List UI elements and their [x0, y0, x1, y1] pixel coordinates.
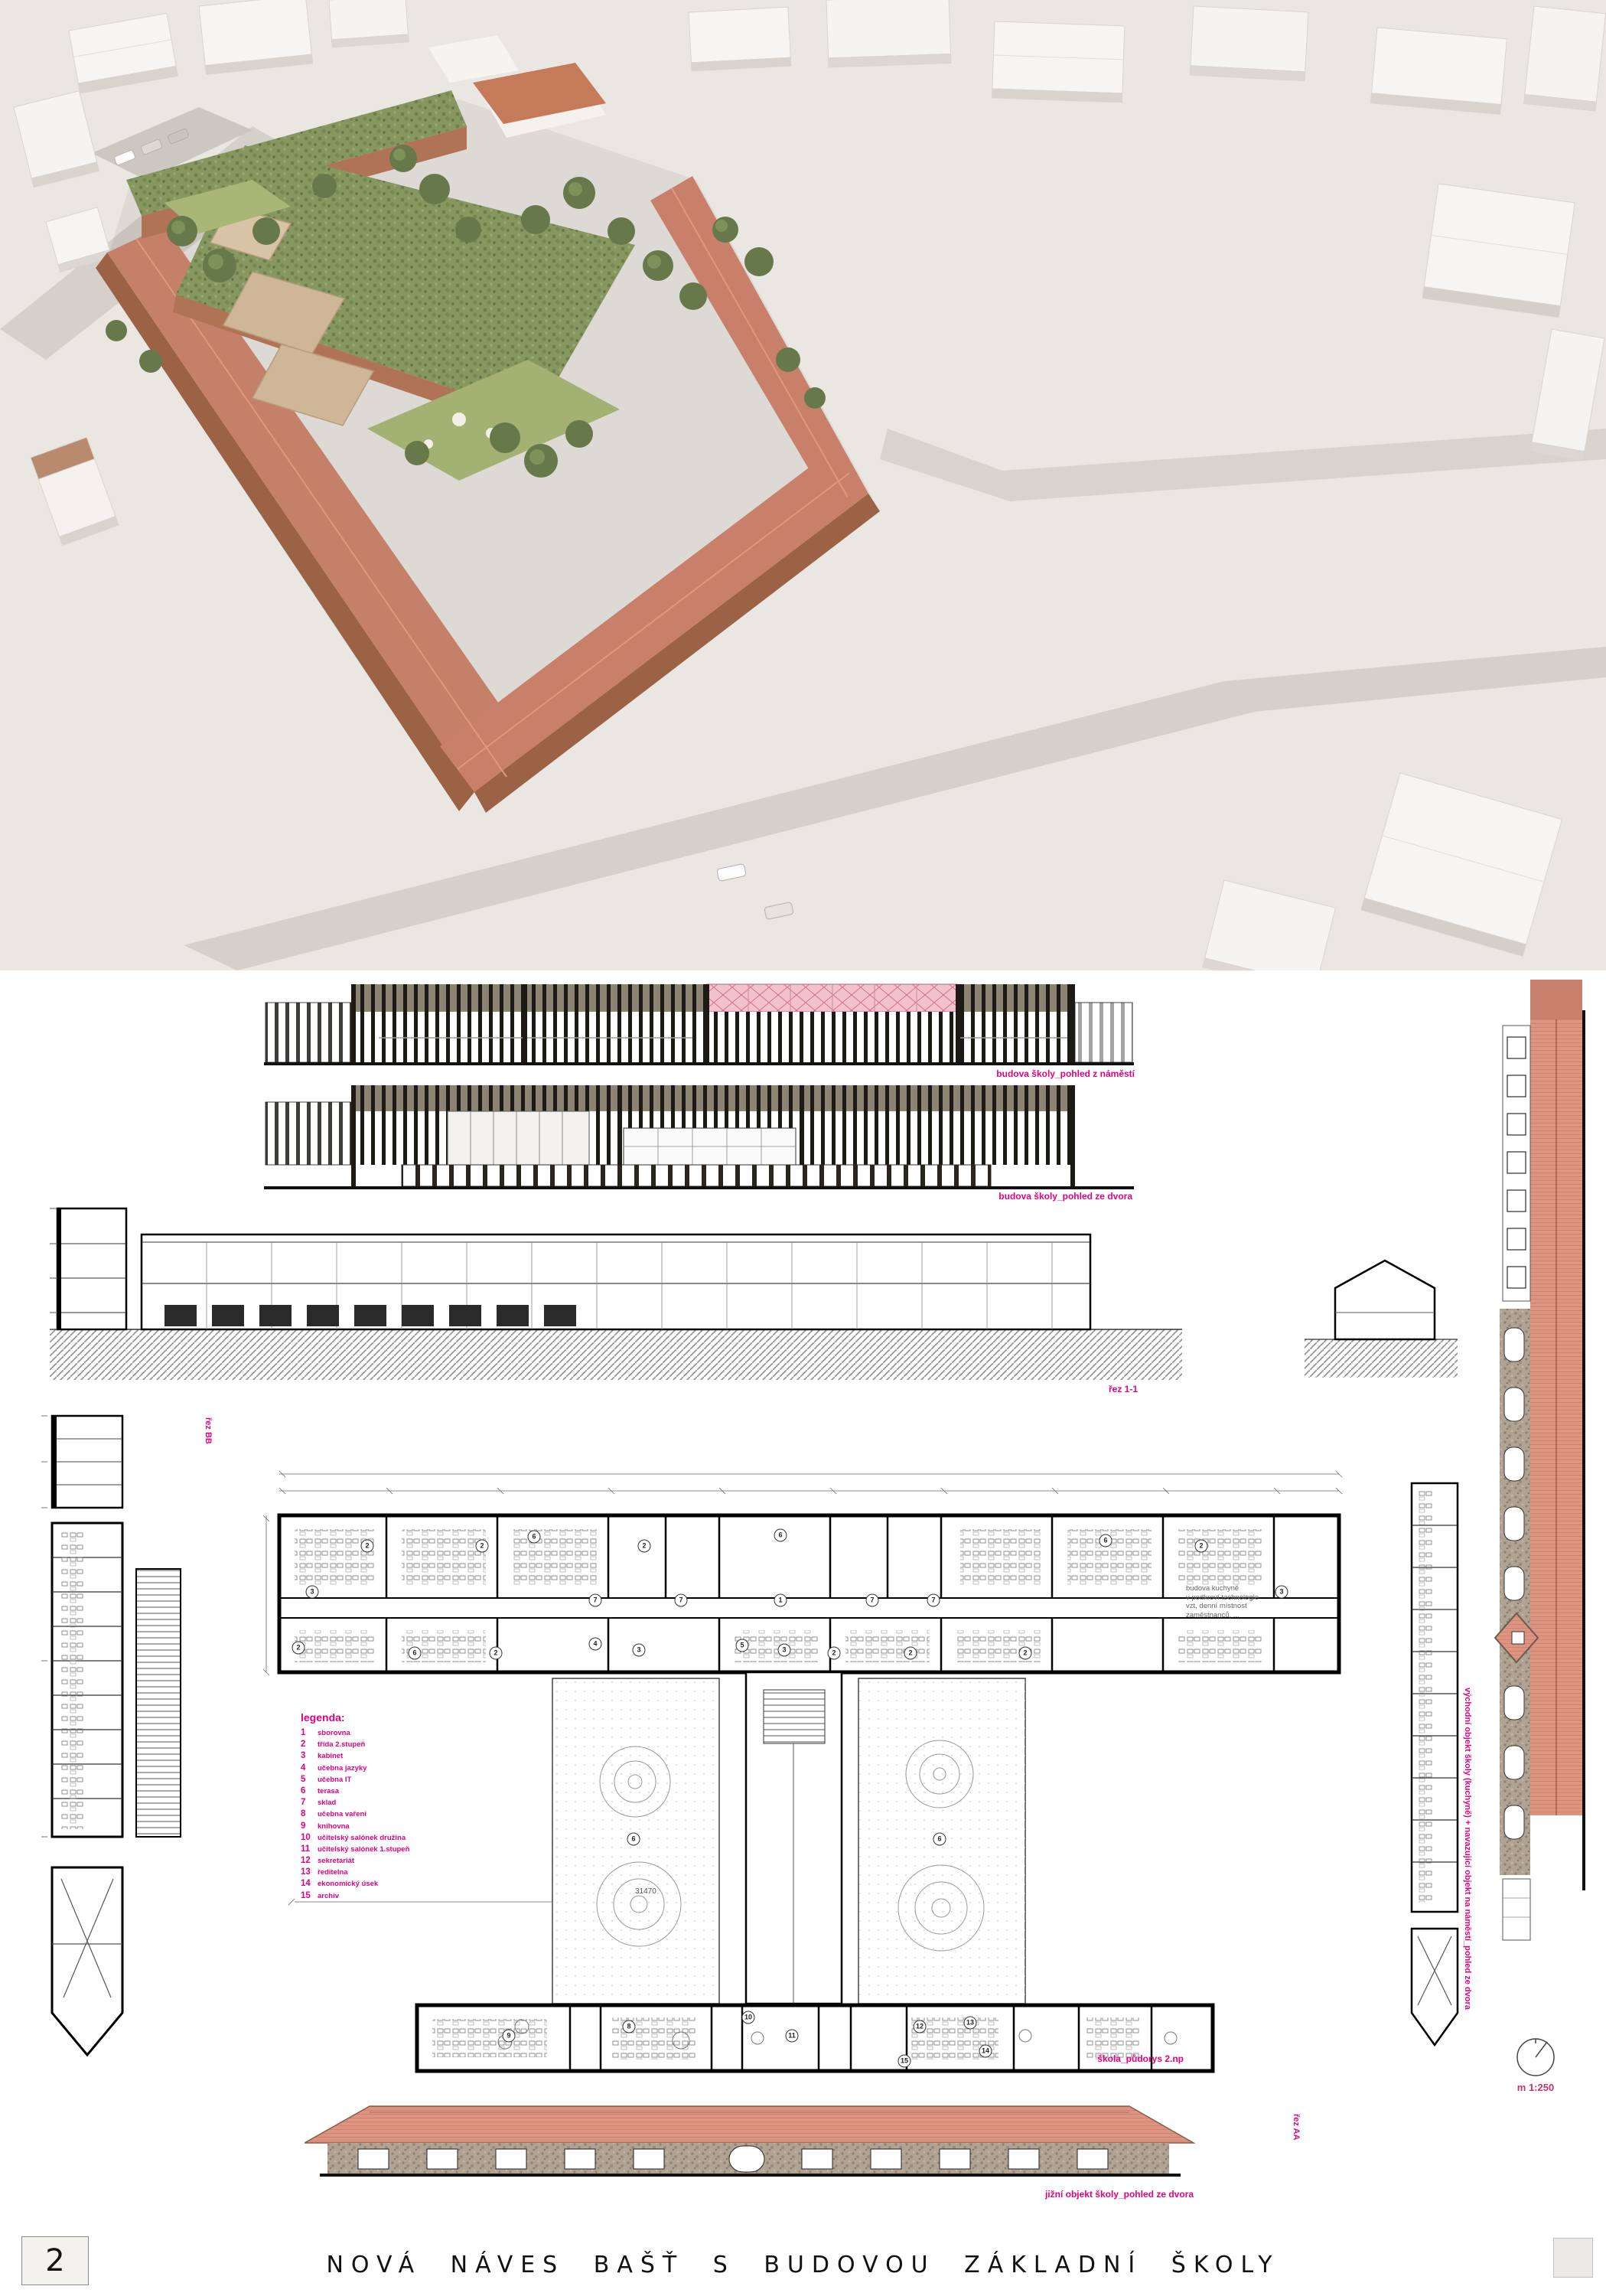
- room-number-marker: 2: [490, 1647, 503, 1660]
- room-number-marker: 2: [1195, 1540, 1208, 1553]
- legend-item: 10učitelský salónek družina: [301, 1833, 477, 1844]
- board-title: NOVÁ NÁVES BAŠŤ S BUDOVOU ZÁKLADNÍ ŠKOLY: [0, 2252, 1606, 2278]
- elevation-square-label: budova školy_pohled z náměstí: [880, 1068, 1135, 1079]
- legend-item: 13ředitelna: [301, 1867, 477, 1879]
- room-number-marker: 6: [774, 1529, 787, 1542]
- room-number-marker: 6: [409, 1647, 422, 1660]
- room-number-marker: 12: [914, 2020, 927, 2033]
- legend-item: 4učebna jazyky: [301, 1763, 477, 1775]
- legend-item: 15archiv: [301, 1891, 477, 1903]
- legend-items: 1sborovna2třída 2.stupeň3kabinet4učebna …: [301, 1728, 477, 1903]
- room-number-marker: 3: [306, 1586, 319, 1599]
- room-number-marker: 4: [589, 1638, 602, 1651]
- room-number-marker: 2: [904, 1647, 917, 1660]
- room-number-marker: 2: [1019, 1647, 1032, 1660]
- legend-item: 8učebna vaření: [301, 1809, 477, 1821]
- room-number-marker: 7: [866, 1594, 879, 1607]
- legend-item: 9knihovna: [301, 1821, 477, 1833]
- room-number-marker: 8: [623, 2020, 636, 2033]
- section-bb-drawing: [38, 1408, 203, 2070]
- south-elevation-label: jižní objekt školy_pohled ze dvora: [941, 2189, 1194, 2200]
- scale-indicator: m 1:250: [1501, 2036, 1570, 2093]
- room-number-marker: 3: [633, 1644, 646, 1657]
- room-number-marker: 2: [638, 1540, 651, 1553]
- plan-legend: legenda: 1sborovna2třída 2.stupeň3kabine…: [301, 1711, 477, 1903]
- room-number-marker: 5: [736, 1639, 749, 1652]
- room-number-marker: 7: [589, 1594, 602, 1607]
- room-number-marker: 7: [675, 1594, 688, 1607]
- scale-dial-icon: [1514, 2036, 1557, 2079]
- plan-central-core: [746, 1672, 842, 2004]
- room-number-marker: 2: [361, 1540, 374, 1553]
- room-number-marker: 15: [898, 2055, 911, 2068]
- room-number-marker: 2: [476, 1540, 489, 1553]
- elevation-square-drawing: [264, 980, 1134, 1071]
- plan-note: budova kuchyněv podkroví technologievzt,…: [1186, 1584, 1308, 1619]
- east-elevation-drawing: [1492, 980, 1591, 1968]
- legend-item: 3kabinet: [301, 1751, 477, 1763]
- scale-label: m 1:250: [1501, 2082, 1570, 2093]
- legend-item: 5učebna IT: [301, 1775, 477, 1786]
- floor-plan-label: škola_půdorys 2.np: [995, 2053, 1184, 2064]
- section-aa-label: řez AA: [1292, 2114, 1301, 2140]
- plan-note-line: budova kuchyně: [1186, 1584, 1308, 1593]
- room-number-marker: 2: [292, 1642, 305, 1655]
- south-elevation-drawing: [305, 2105, 1196, 2190]
- legend-title: legenda:: [301, 1711, 477, 1724]
- room-number-marker: 14: [979, 2045, 992, 2058]
- room-number-marker: 1: [774, 1594, 787, 1607]
- room-number-marker: 13: [964, 2017, 977, 2030]
- right-bastion-plan: [1412, 1929, 1458, 2045]
- section-1-1-label: řez 1-1: [1056, 1384, 1138, 1394]
- plan-top-wing: [279, 1515, 1339, 1672]
- plan-note-line: vzt, denní místnost: [1186, 1602, 1308, 1611]
- elevation-pink-gable: [706, 984, 957, 1012]
- elevation-courtyard-drawing: [264, 1085, 1134, 1194]
- room-number-marker: 3: [778, 1644, 791, 1657]
- legend-item: 14ekonomický úsek: [301, 1879, 477, 1890]
- legend-item: 2třída 2.stupeň: [301, 1740, 477, 1751]
- south-elevation-roof: [305, 2106, 1194, 2143]
- plan-note-line: zaměstnanců, ...: [1186, 1611, 1308, 1620]
- section-bb-label: řez BB: [204, 1417, 213, 1444]
- section-1-1-drawing: [50, 1198, 1458, 1388]
- section-small-house: [1335, 1261, 1435, 1339]
- plan-dimension-value: 31470: [635, 1887, 656, 1896]
- legend-item: 12sekretariát: [301, 1856, 477, 1867]
- room-number-marker: 2: [828, 1647, 841, 1660]
- room-number-marker: 9: [503, 2030, 516, 2043]
- plan-note-line: v podkroví technologie: [1186, 1593, 1308, 1603]
- corner-marker: [1553, 2238, 1593, 2278]
- section-main-building: [142, 1234, 1090, 1329]
- legend-item: 6terasa: [301, 1786, 477, 1798]
- legend-item: 11učitelský salónek 1.stupeň: [301, 1844, 477, 1856]
- room-number-marker: 6: [528, 1531, 541, 1544]
- room-number-marker: 7: [927, 1594, 940, 1607]
- room-number-marker: 6: [627, 1833, 640, 1846]
- room-number-marker: 10: [742, 2011, 755, 2024]
- room-number-marker: 11: [786, 2030, 799, 2043]
- aerial-render: [0, 0, 1606, 970]
- legend-item: 1sborovna: [301, 1728, 477, 1740]
- legend-item: 7sklad: [301, 1798, 477, 1809]
- section-left-tower: [50, 1208, 126, 1329]
- room-number-marker: 6: [933, 1833, 946, 1846]
- presentation-board: budova školy_pohled z náměstí budova ško…: [0, 0, 1606, 2296]
- room-number-marker: 6: [1099, 1534, 1112, 1548]
- section-aa-drawing: [1402, 1477, 1468, 2070]
- left-bastion-plan: [52, 1867, 122, 2055]
